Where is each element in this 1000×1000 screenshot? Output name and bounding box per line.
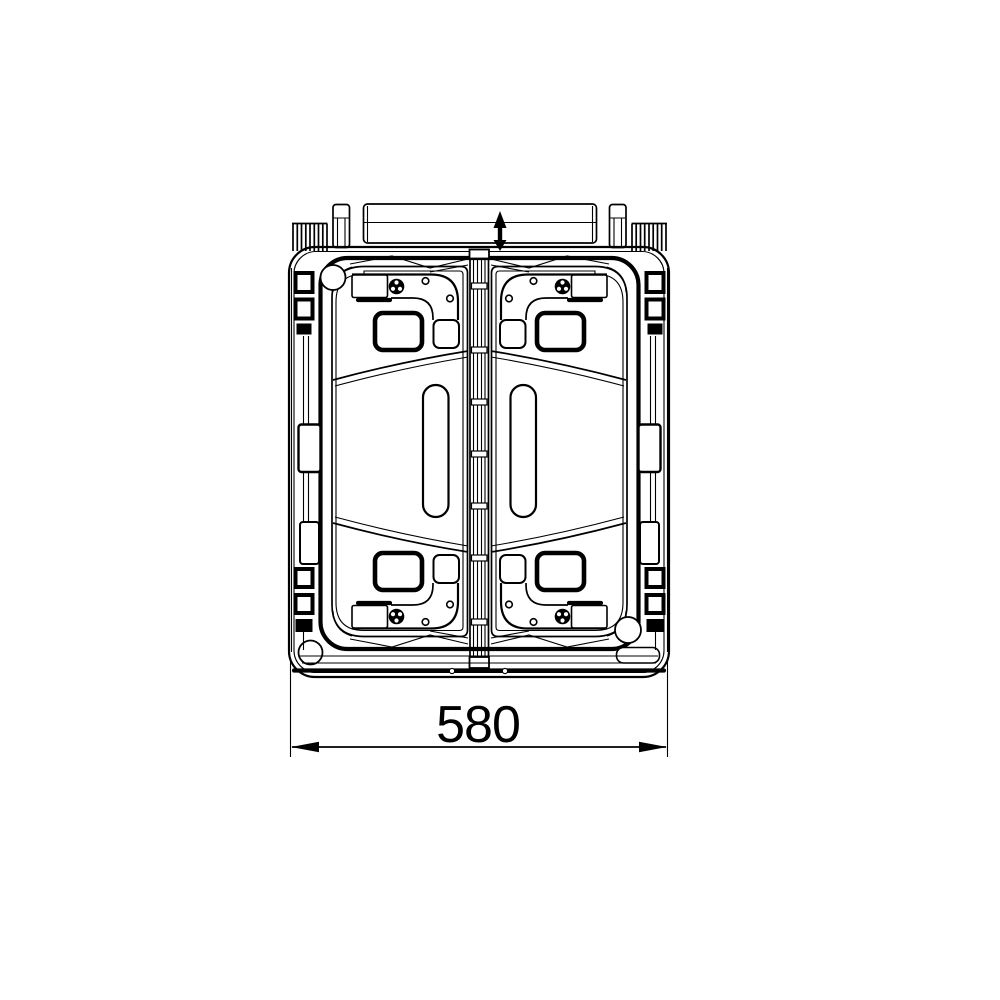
quadrant-top-right — [491, 256, 626, 386]
slot-left — [423, 385, 449, 517]
top-cover-panel — [364, 204, 597, 243]
edge-clips-right — [639, 268, 668, 652]
left-post — [333, 205, 350, 248]
edge-clips-left — [292, 268, 321, 652]
right-post — [610, 205, 627, 248]
corner-hole-bottom-left — [299, 641, 323, 665]
body-outline — [289, 247, 669, 677]
dimension-arrow-left-icon — [291, 742, 319, 752]
slot-right — [511, 385, 537, 517]
center-divider — [470, 250, 490, 669]
dimension-arrow-right-icon — [639, 742, 667, 752]
technical-drawing-page: 580 — [0, 0, 1000, 1000]
corner-pad-bottom-right — [617, 648, 660, 664]
quadrant-top-left — [333, 256, 468, 386]
corner-hole-top-left — [321, 265, 346, 290]
corner-hole-bottom-right — [615, 617, 641, 643]
dimension-label: 580 — [436, 696, 520, 754]
quadrant-bottom-left — [333, 517, 468, 647]
technical-drawing: 580 — [0, 0, 1000, 1000]
quadrant-bottom-right — [491, 517, 626, 647]
direction-arrow-icon — [494, 211, 507, 251]
